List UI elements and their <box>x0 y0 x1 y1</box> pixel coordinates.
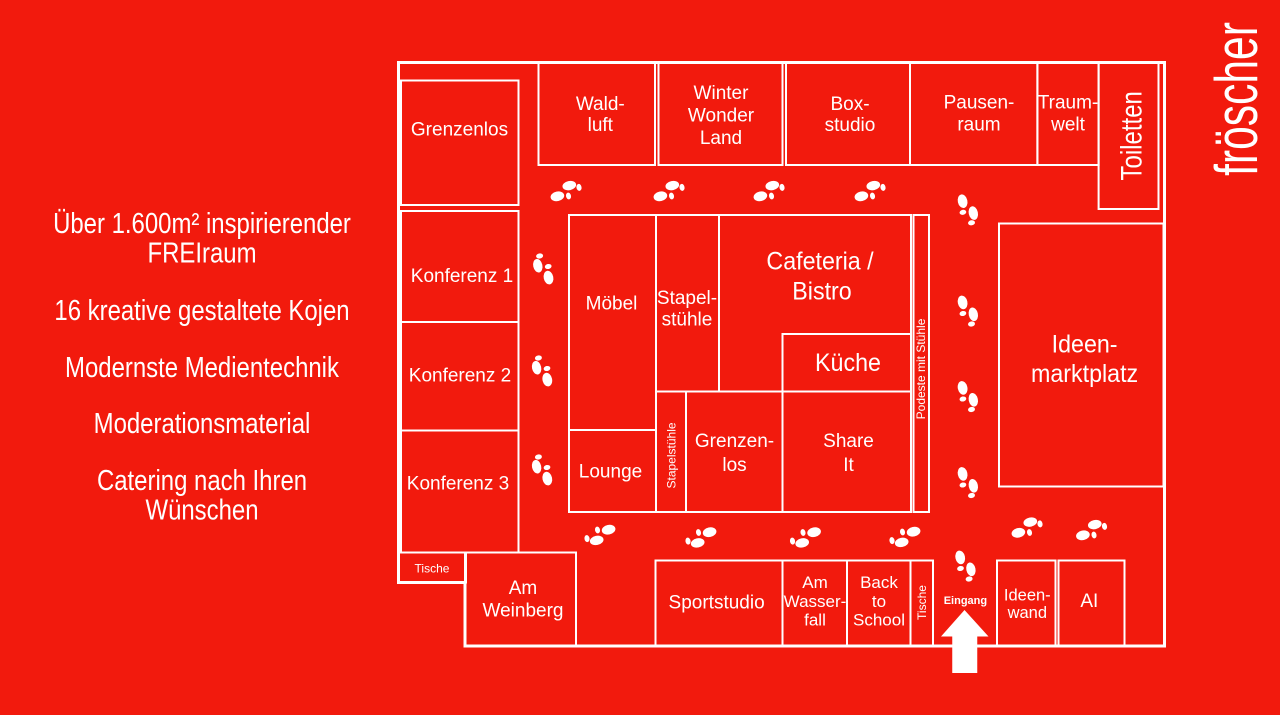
svg-text:Tische: Tische <box>415 562 450 576</box>
svg-text:fröscher: fröscher <box>1204 22 1271 176</box>
svg-text:Küche: Küche <box>815 349 881 377</box>
svg-text:Cafeteria /: Cafeteria / <box>766 248 873 276</box>
svg-text:Wünschen: Wünschen <box>145 493 258 525</box>
svg-text:los: los <box>722 455 746 476</box>
svg-text:Catering nach Ihren: Catering nach Ihren <box>97 464 307 496</box>
svg-text:Stapel-: Stapel- <box>657 288 717 309</box>
svg-text:Tische: Tische <box>915 585 929 620</box>
svg-text:studio: studio <box>825 115 876 136</box>
svg-text:Konferenz 3: Konferenz 3 <box>407 474 509 495</box>
svg-text:Stapelstühle: Stapelstühle <box>665 422 679 488</box>
svg-text:fall: fall <box>804 610 826 629</box>
svg-text:Ideen-: Ideen- <box>1004 587 1051 605</box>
svg-text:Über 1.600m² inspirierender: Über 1.600m² inspirierender <box>53 207 351 239</box>
svg-text:Back: Back <box>860 573 898 592</box>
svg-text:Grenzenlos: Grenzenlos <box>411 120 508 141</box>
svg-text:Weinberg: Weinberg <box>483 601 564 622</box>
svg-text:Pausen-: Pausen- <box>944 93 1015 114</box>
svg-text:Share: Share <box>823 431 874 452</box>
svg-text:Eingang: Eingang <box>944 595 987 607</box>
svg-text:Winter: Winter <box>694 83 750 104</box>
svg-text:FREIraum: FREIraum <box>148 236 257 268</box>
svg-text:welt: welt <box>1050 115 1086 136</box>
svg-text:Modernste Medientechnik: Modernste Medientechnik <box>65 351 340 383</box>
svg-text:Box-: Box- <box>830 94 869 115</box>
svg-text:Am: Am <box>509 578 538 599</box>
svg-text:Moderationsmaterial: Moderationsmaterial <box>94 407 311 439</box>
svg-text:Grenzen-: Grenzen- <box>695 431 774 452</box>
svg-text:Bistro: Bistro <box>792 278 851 306</box>
svg-text:Wasser-: Wasser- <box>784 592 847 611</box>
svg-text:It: It <box>843 455 854 476</box>
svg-text:Wonder: Wonder <box>688 106 755 127</box>
svg-text:Konferenz 2: Konferenz 2 <box>409 366 511 387</box>
svg-text:to: to <box>872 592 886 611</box>
svg-text:Konferenz 1: Konferenz 1 <box>411 266 513 287</box>
svg-text:wand: wand <box>1007 604 1047 622</box>
svg-text:raum: raum <box>957 115 1000 136</box>
svg-text:Möbel: Möbel <box>586 294 638 315</box>
svg-text:stühle: stühle <box>662 309 713 330</box>
svg-text:luft: luft <box>588 115 614 136</box>
svg-text:Podeste mit Stühle: Podeste mit Stühle <box>914 318 928 419</box>
svg-text:Lounge: Lounge <box>579 461 642 482</box>
svg-text:AI: AI <box>1080 591 1098 612</box>
svg-text:Land: Land <box>700 128 742 149</box>
svg-text:Sportstudio: Sportstudio <box>669 593 765 614</box>
svg-text:Toiletten: Toiletten <box>1114 91 1148 180</box>
svg-text:Traum-: Traum- <box>1038 93 1099 114</box>
svg-text:Wald-: Wald- <box>576 94 625 115</box>
svg-text:Am: Am <box>802 573 828 592</box>
svg-text:16 kreative gestaltete Kojen: 16 kreative gestaltete Kojen <box>54 294 349 326</box>
svg-text:School: School <box>853 610 905 629</box>
svg-text:Ideen-: Ideen- <box>1052 331 1118 359</box>
svg-text:marktplatz: marktplatz <box>1031 360 1138 388</box>
